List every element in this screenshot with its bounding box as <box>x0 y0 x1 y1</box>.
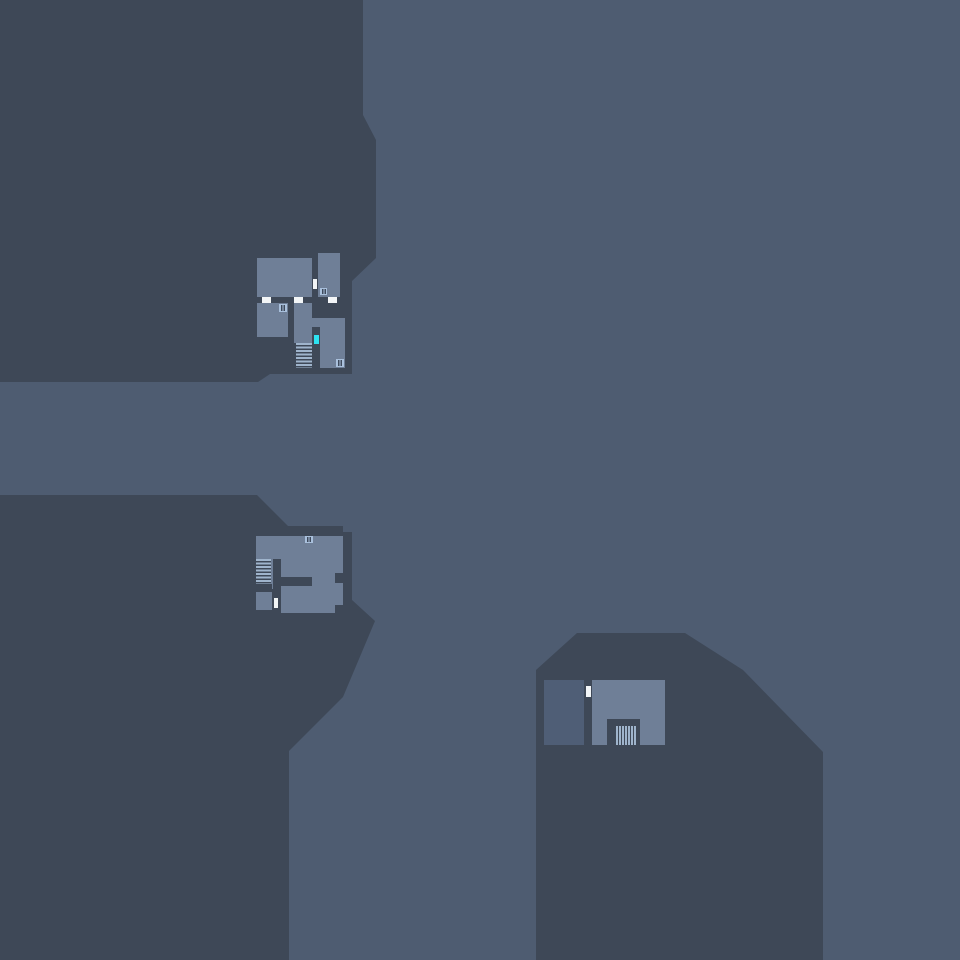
stairs-icon[interactable] <box>256 559 271 584</box>
vent-icon[interactable] <box>336 359 344 367</box>
door-icon[interactable] <box>274 598 278 608</box>
vent-icon[interactable] <box>279 304 287 312</box>
stairs-icon[interactable] <box>296 343 312 368</box>
door-icon[interactable] <box>586 686 591 697</box>
vent-slits <box>306 537 312 542</box>
corridor <box>312 318 345 327</box>
vent-slits <box>321 289 326 294</box>
vent-slits <box>337 360 343 366</box>
wall <box>281 577 312 586</box>
door-icon[interactable] <box>313 279 317 289</box>
grate-icon[interactable] <box>616 726 637 745</box>
corridor <box>294 303 312 343</box>
terrain-layer <box>0 0 960 960</box>
wall <box>256 584 272 592</box>
door-icon[interactable] <box>328 297 337 303</box>
wall <box>273 559 281 589</box>
vent-icon[interactable] <box>305 536 313 543</box>
room <box>257 258 312 297</box>
game-viewport[interactable] <box>0 0 960 960</box>
objective-marker[interactable] <box>314 335 319 344</box>
room <box>544 680 584 745</box>
wall <box>256 610 272 613</box>
vent-slits <box>280 305 286 311</box>
wall <box>335 605 343 613</box>
vent-icon[interactable] <box>320 288 327 295</box>
door-icon[interactable] <box>262 297 271 303</box>
wall <box>335 573 343 583</box>
door-icon[interactable] <box>294 297 303 303</box>
